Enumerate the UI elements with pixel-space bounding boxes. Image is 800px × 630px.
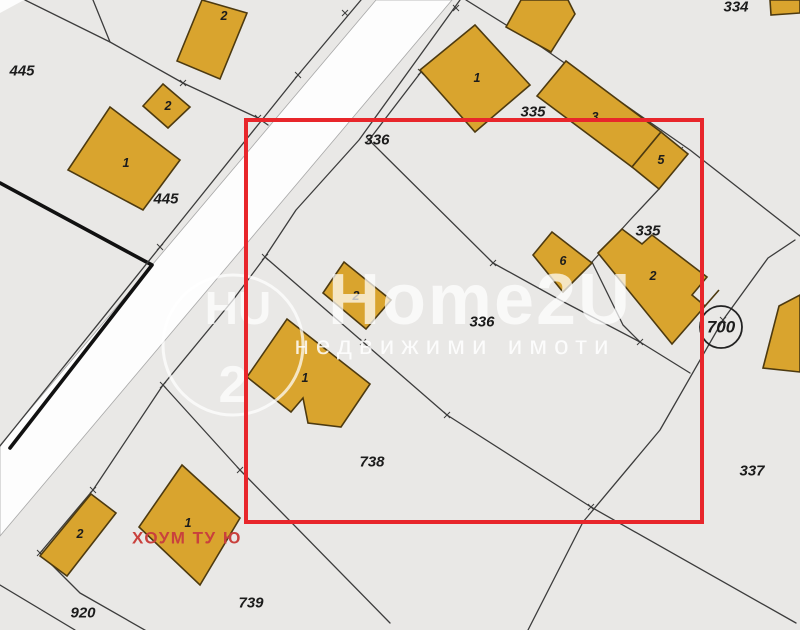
building-number-label: 1: [123, 156, 130, 170]
parcel-number-label: 335: [635, 223, 661, 240]
parcel-number-label: 335: [520, 104, 546, 121]
parcel-number-label: 920: [70, 605, 96, 622]
parcel-number-label: 336: [364, 132, 390, 149]
parcel-number-label: 336: [469, 314, 495, 331]
parcel-number-label: 337: [739, 463, 765, 480]
building-number-label: 2: [649, 269, 657, 283]
parcel-number-label: 445: [152, 191, 179, 208]
building-number-label: 5: [658, 153, 666, 167]
parcel-number-label: 739: [238, 595, 264, 612]
building-number-label: 2: [220, 9, 228, 23]
parcel-number-label: 334: [723, 0, 749, 16]
parcel-number-label: 738: [359, 454, 385, 471]
map-viewport[interactable]: 221135622121HU2Home2Uнедвижими имоти4454…: [0, 0, 800, 630]
landmark-number: 700: [707, 318, 736, 337]
building-footprint: [770, 0, 800, 15]
building-number-label: 1: [474, 71, 481, 85]
watermark-monogram-bottom: 2: [219, 356, 248, 414]
building-number-label: 1: [302, 371, 309, 385]
map-canvas[interactable]: 221135622121HU2Home2Uнедвижими имоти4454…: [0, 0, 800, 630]
building-number-label: 2: [164, 99, 172, 113]
building-number-label: 2: [76, 527, 84, 541]
watermark-monogram-top: HU: [205, 282, 271, 334]
parcel-number-label: 445: [8, 63, 35, 80]
agency-label: ХОУМ ТУ Ю: [132, 529, 242, 548]
watermark-tagline: недвижими имоти: [294, 330, 615, 360]
